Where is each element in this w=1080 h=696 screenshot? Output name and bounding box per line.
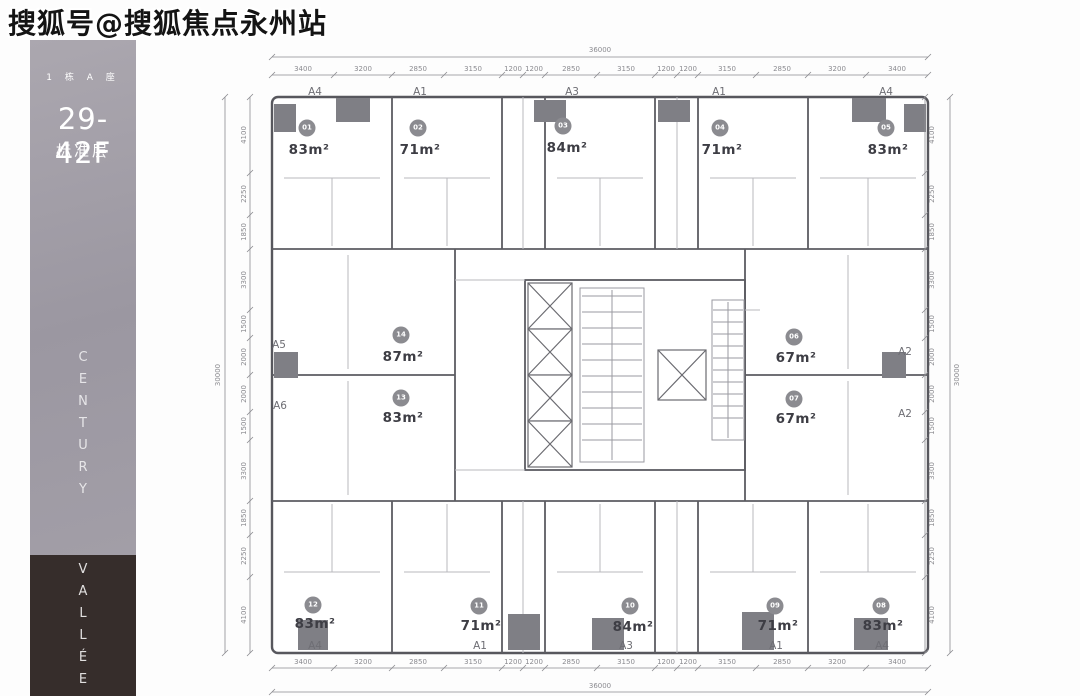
dim-label: 3300 [240, 462, 248, 480]
dim-label: 4100 [928, 126, 936, 144]
brand-century: CENTURY [30, 350, 136, 555]
axis-label-left: A6 [273, 400, 287, 412]
dim-label: 3300 [928, 271, 936, 289]
unit-number-badge: 09 [767, 598, 784, 615]
dim-label: 3400 [294, 65, 312, 73]
dim-overall-left: 30000 [214, 364, 222, 386]
axis-label-top: A1 [413, 86, 427, 98]
dim-label: 3400 [294, 658, 312, 666]
unit-number-badge: 04 [712, 120, 729, 137]
dim-label: 1200 [679, 65, 697, 73]
dim-label: 3150 [718, 65, 736, 73]
unit-area-label: 71m² [400, 142, 441, 158]
dim-label: 3200 [828, 65, 846, 73]
dim-label: 2000 [928, 385, 936, 403]
dim-label: 3150 [464, 658, 482, 666]
unit-number-badge: 12 [305, 597, 322, 614]
unit-number-badge: 06 [786, 329, 803, 346]
unit-number-badge: 05 [878, 120, 895, 137]
floorplan-drawing [0, 0, 1080, 696]
axis-label-right: A2 [898, 408, 912, 420]
dim-label: 1200 [679, 658, 697, 666]
dim-label: 3400 [888, 65, 906, 73]
unit-area-label: 71m² [758, 618, 799, 634]
dim-label: 1850 [240, 509, 248, 527]
dim-label: 2250 [240, 547, 248, 565]
dim-label: 2850 [562, 65, 580, 73]
dim-label: 1500 [928, 417, 936, 435]
unit-area-label: 83m² [868, 142, 909, 158]
brand-century-text: CENTURY [76, 350, 91, 555]
dim-label: 1200 [525, 65, 543, 73]
dim-label: 1500 [928, 315, 936, 333]
unit-area-label: 84m² [547, 140, 588, 156]
dim-label: 1200 [504, 65, 522, 73]
axis-label-bottom: A1 [769, 640, 783, 652]
dim-label: 3200 [354, 65, 372, 73]
dim-label: 2850 [409, 65, 427, 73]
dim-label: 3150 [464, 65, 482, 73]
dim-label: 1200 [657, 65, 675, 73]
dim-label: 3150 [718, 658, 736, 666]
dim-label: 3200 [354, 658, 372, 666]
axis-label-left: A5 [272, 339, 286, 351]
dim-label: 2850 [562, 658, 580, 666]
unit-number-badge: 01 [299, 120, 316, 137]
dim-label: 2000 [928, 348, 936, 366]
dim-label: 2250 [928, 547, 936, 565]
unit-area-label: 83m² [289, 142, 330, 158]
unit-area-label: 71m² [461, 618, 502, 634]
axis-label-top: A3 [565, 86, 579, 98]
dim-label: 1500 [240, 315, 248, 333]
dim-label: 4100 [240, 126, 248, 144]
dim-label: 2850 [773, 658, 791, 666]
dim-label: 2250 [240, 185, 248, 203]
dim-label: 1200 [657, 658, 675, 666]
dim-label: 1200 [525, 658, 543, 666]
dim-label: 1850 [928, 223, 936, 241]
dim-overall-right: 30000 [953, 364, 961, 386]
axis-label-bottom: A1 [473, 640, 487, 652]
axis-label-top: A4 [308, 86, 322, 98]
dim-label: 1500 [240, 417, 248, 435]
unit-number-badge: 13 [393, 390, 410, 407]
axis-label-top: A1 [712, 86, 726, 98]
axis-label-bottom: A4 [875, 640, 889, 652]
dim-label: 3150 [617, 658, 635, 666]
dim-label: 3300 [928, 462, 936, 480]
brand-vallee-text: VALLÉE [76, 562, 91, 692]
dim-label: 2250 [928, 185, 936, 203]
dim-label: 3200 [828, 658, 846, 666]
dim-label: 3150 [617, 65, 635, 73]
dim-label: 2000 [240, 348, 248, 366]
watermark-text: 搜狐号@搜狐焦点永州站 [8, 2, 327, 42]
axis-label-bottom: A4 [308, 640, 322, 652]
dim-label: 1200 [504, 658, 522, 666]
sidebar: 1 栋 A 座 29-42F 标准层 CENTURY VALLÉE [30, 40, 136, 696]
axis-label-right: A2 [898, 346, 912, 358]
dim-label: 4100 [928, 606, 936, 624]
unit-number-badge: 03 [555, 118, 572, 135]
unit-area-label: 67m² [776, 411, 817, 427]
unit-number-badge: 07 [786, 391, 803, 408]
unit-area-label: 83m² [295, 616, 336, 632]
dim-label: 3300 [240, 271, 248, 289]
axis-label-top: A4 [879, 86, 893, 98]
unit-number-badge: 02 [410, 120, 427, 137]
dim-overall-bottom: 36000 [589, 682, 611, 690]
dim-label: 4100 [240, 606, 248, 624]
floor-type-label: 标准层 [30, 140, 136, 161]
building-label: 1 栋 A 座 [30, 70, 136, 83]
unit-area-label: 87m² [383, 349, 424, 365]
unit-area-label: 84m² [613, 619, 654, 635]
unit-number-badge: 14 [393, 327, 410, 344]
unit-area-label: 71m² [702, 142, 743, 158]
dim-label: 2850 [409, 658, 427, 666]
unit-number-badge: 08 [873, 598, 890, 615]
dim-overall-top: 36000 [589, 46, 611, 54]
page: 搜狐号@搜狐焦点永州站 1 栋 A 座 29-42F 标准层 CENTURY V… [0, 0, 1080, 696]
unit-area-label: 83m² [863, 618, 904, 634]
dim-label: 3400 [888, 658, 906, 666]
unit-area-label: 83m² [383, 410, 424, 426]
unit-number-badge: 11 [471, 598, 488, 615]
unit-area-label: 67m² [776, 350, 817, 366]
unit-number-badge: 10 [622, 598, 639, 615]
axis-label-bottom: A3 [619, 640, 633, 652]
brand-vallee: VALLÉE [30, 562, 136, 692]
dim-label: 2850 [773, 65, 791, 73]
dim-label: 1850 [928, 509, 936, 527]
dim-label: 2000 [240, 385, 248, 403]
dim-label: 1850 [240, 223, 248, 241]
